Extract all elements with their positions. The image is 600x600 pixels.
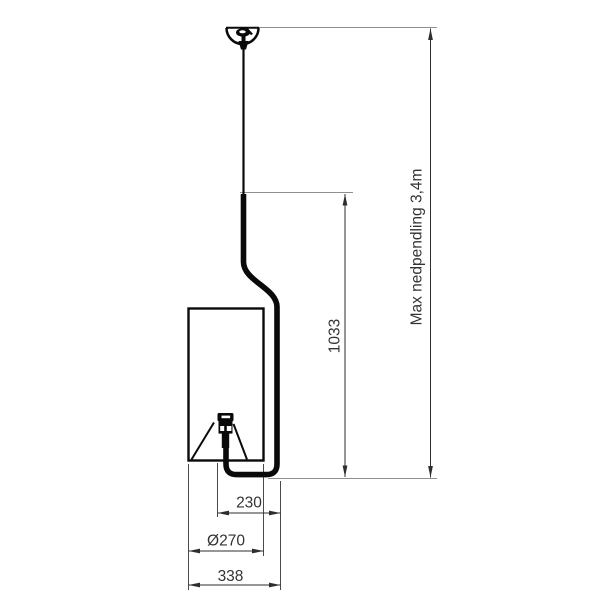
socket-window-left xyxy=(220,426,224,431)
socket-cap-slot xyxy=(222,416,231,419)
cord-strain-relief xyxy=(239,41,249,50)
canopy-knot-highlight xyxy=(239,30,245,33)
total-width-dimension-label: 338 xyxy=(218,568,244,585)
holder-left-leg xyxy=(192,423,215,460)
stem-tube xyxy=(226,194,277,475)
holder-right-leg xyxy=(234,424,248,460)
shade-diameter-dimension-label: Ø270 xyxy=(207,533,245,550)
socket-window-right xyxy=(227,426,232,431)
drawing-canvas: Max nedpendling 3,4m 1033 230 Ø270 338 xyxy=(0,0,600,600)
technical-drawing: Max nedpendling 3,4m 1033 230 Ø270 338 xyxy=(0,0,600,600)
height-dimension-label: 1033 xyxy=(327,319,344,353)
canopy-neck xyxy=(242,36,246,42)
ceiling-canopy xyxy=(226,28,259,50)
bulb-socket xyxy=(218,413,234,448)
max-drop-dimension-label: Max nedpendling 3,4m xyxy=(409,169,426,326)
socket-stem xyxy=(222,434,229,449)
center-offset-dimension-label: 230 xyxy=(236,495,262,512)
